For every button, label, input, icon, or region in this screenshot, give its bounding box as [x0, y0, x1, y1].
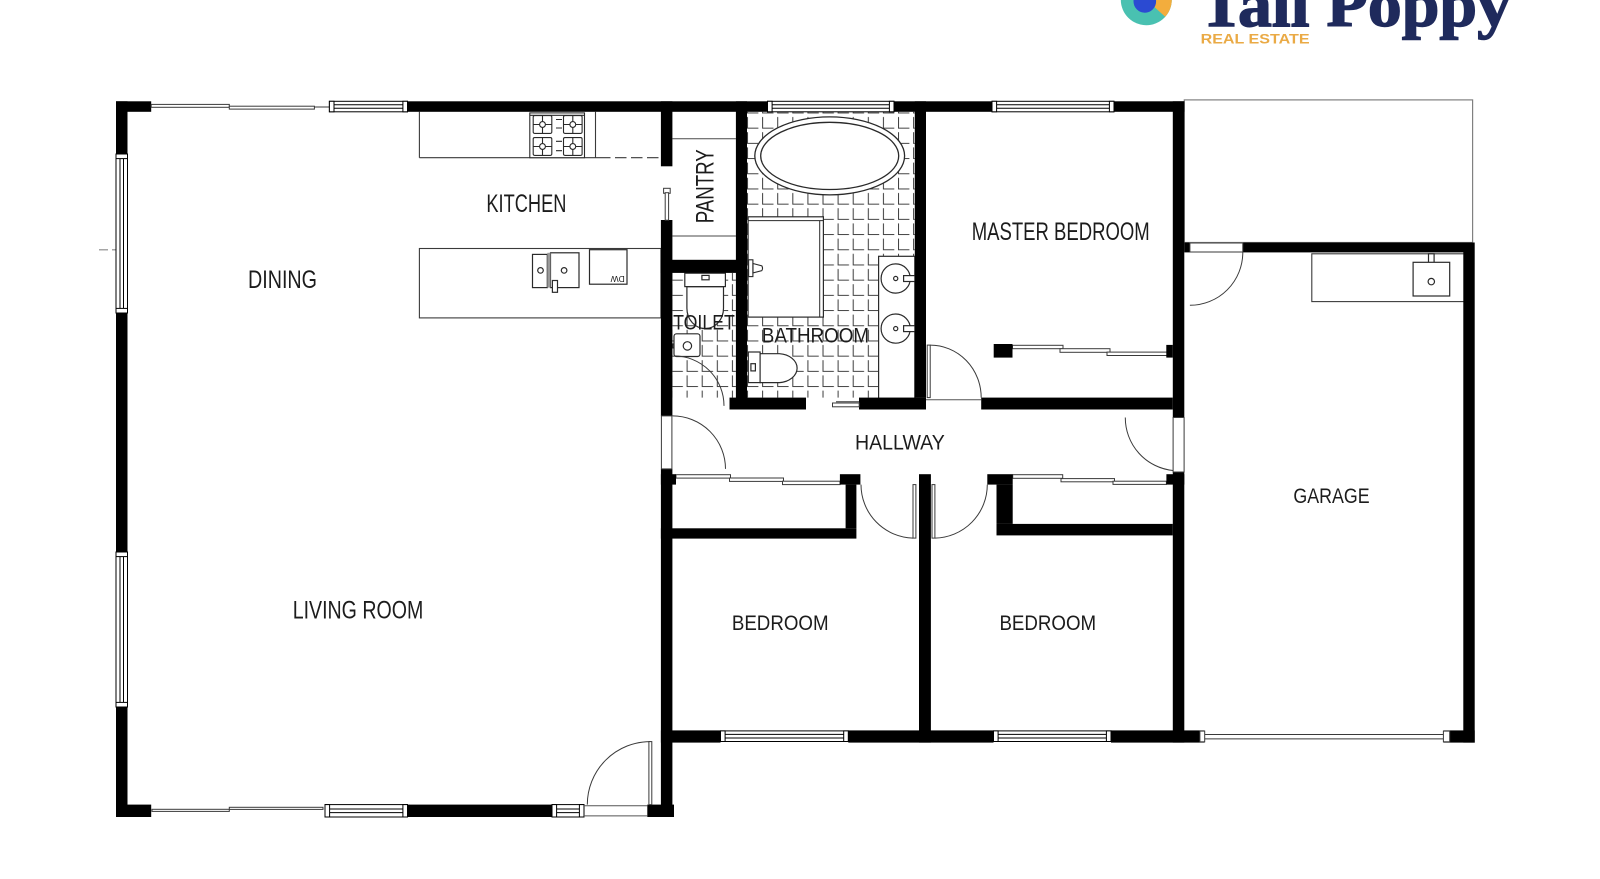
svg-text:BEDROOM: BEDROOM — [732, 611, 829, 635]
svg-text:KITCHEN: KITCHEN — [486, 190, 566, 218]
svg-text:REAL ESTATE: REAL ESTATE — [1201, 31, 1310, 47]
svg-text:GARAGE: GARAGE — [1293, 484, 1369, 508]
svg-text:HALLWAY: HALLWAY — [855, 430, 945, 454]
svg-text:DINING: DINING — [248, 266, 317, 294]
svg-text:TOILET: TOILET — [673, 310, 735, 334]
svg-text:BEDROOM: BEDROOM — [999, 611, 1096, 635]
svg-text:PANTRY: PANTRY — [692, 149, 720, 223]
svg-text:LIVING ROOM: LIVING ROOM — [293, 596, 424, 624]
svg-text:DW: DW — [611, 274, 625, 284]
svg-text:BATHROOM: BATHROOM — [762, 324, 869, 348]
svg-text:MASTER BEDROOM: MASTER BEDROOM — [972, 218, 1150, 246]
